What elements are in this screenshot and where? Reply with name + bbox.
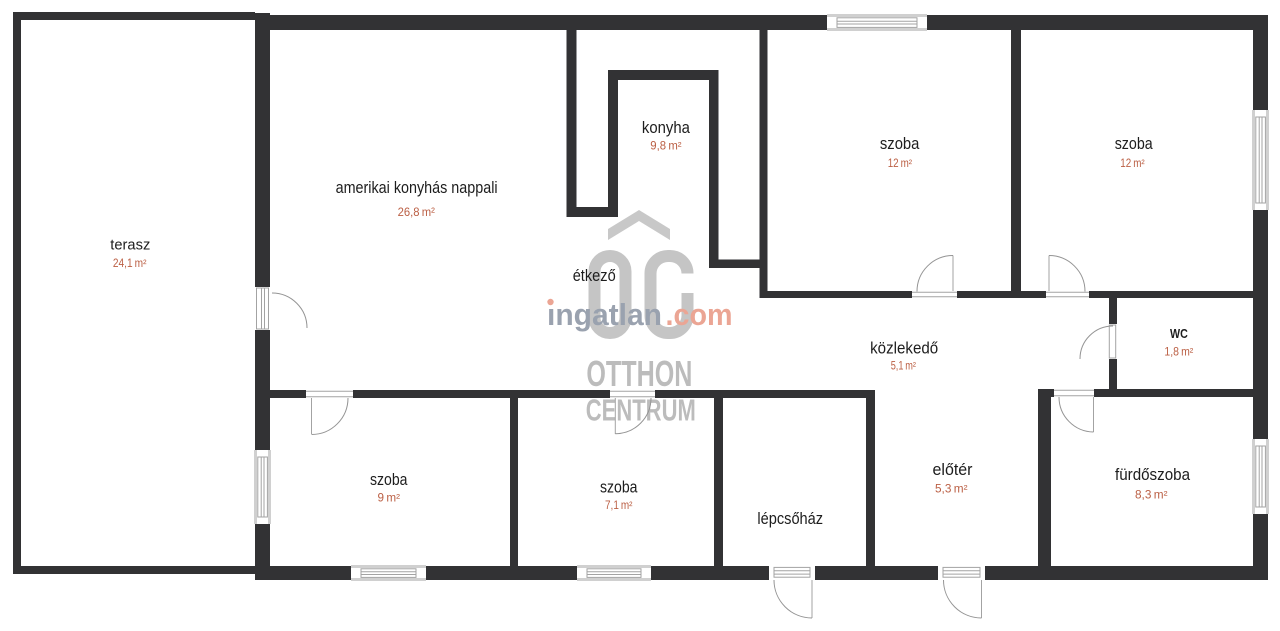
svg-text:9 m²: 9 m² <box>378 493 401 505</box>
svg-text:szoba: szoba <box>600 479 638 497</box>
svg-text:szoba: szoba <box>370 471 408 489</box>
svg-text:szoba: szoba <box>880 135 920 153</box>
svg-text:fürdőszoba: fürdőszoba <box>1115 466 1191 484</box>
svg-text:12 m²: 12 m² <box>1120 158 1145 170</box>
svg-text:lépcsőház: lépcsőház <box>757 510 823 528</box>
svg-text:amerikai konyhás nappali: amerikai konyhás nappali <box>336 178 498 197</box>
svg-text:WC: WC <box>1170 326 1188 341</box>
svg-text:előtér: előtér <box>933 461 973 479</box>
svg-text:terasz: terasz <box>110 238 150 254</box>
svg-text:9,8 m²: 9,8 m² <box>650 141 681 153</box>
svg-text:5,3 m²: 5,3 m² <box>935 484 968 496</box>
svg-text:.com: .com <box>666 297 733 332</box>
svg-text:7,1 m²: 7,1 m² <box>605 500 633 512</box>
svg-text:OTTHON: OTTHON <box>586 353 692 394</box>
svg-text:szoba: szoba <box>1115 135 1154 153</box>
svg-text:5,1 m²: 5,1 m² <box>891 360 916 372</box>
svg-text:ıngatlan: ıngatlan <box>547 297 662 332</box>
svg-text:1,8 m²: 1,8 m² <box>1164 347 1193 359</box>
svg-text:étkező: étkező <box>573 267 616 285</box>
svg-text:24,1 m²: 24,1 m² <box>113 258 147 270</box>
svg-text:közlekedő: közlekedő <box>870 340 938 358</box>
svg-text:konyha: konyha <box>642 119 691 137</box>
svg-text:8,3 m²: 8,3 m² <box>1135 490 1168 502</box>
svg-text:26,8 m²: 26,8 m² <box>398 205 435 219</box>
svg-text:12 m²: 12 m² <box>888 158 913 170</box>
